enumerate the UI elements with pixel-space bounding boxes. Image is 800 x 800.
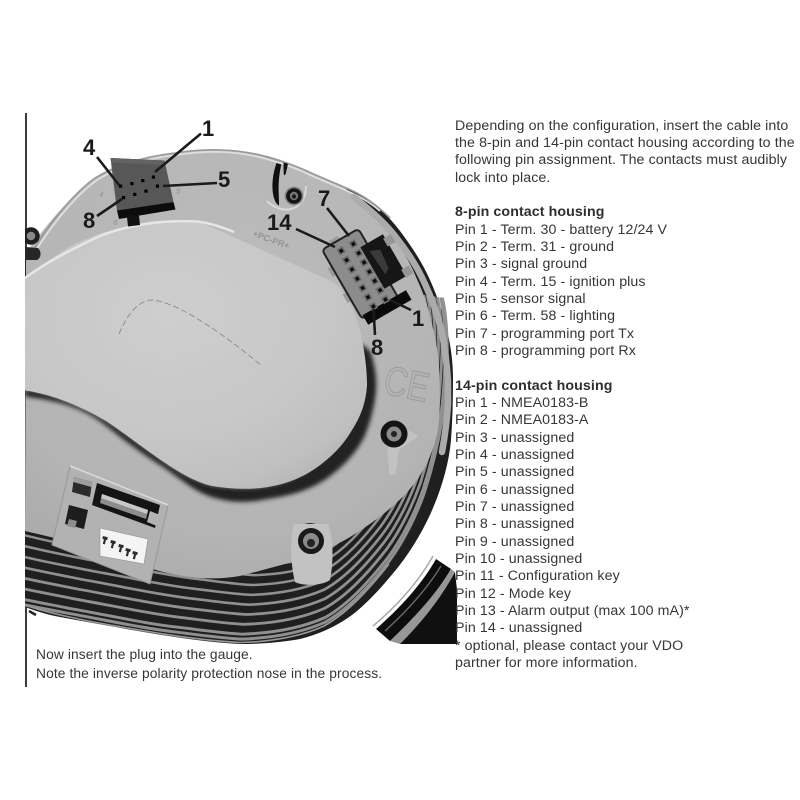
svg-text:5: 5: [218, 167, 230, 192]
svg-text:8: 8: [83, 208, 95, 233]
svg-text:7: 7: [318, 186, 330, 211]
svg-text:8: 8: [371, 335, 383, 360]
svg-text:14: 14: [267, 210, 292, 235]
svg-text:CE: CE: [380, 357, 433, 411]
svg-text:4: 4: [83, 135, 96, 160]
svg-text:1: 1: [412, 306, 424, 331]
svg-text:1: 1: [202, 116, 214, 141]
